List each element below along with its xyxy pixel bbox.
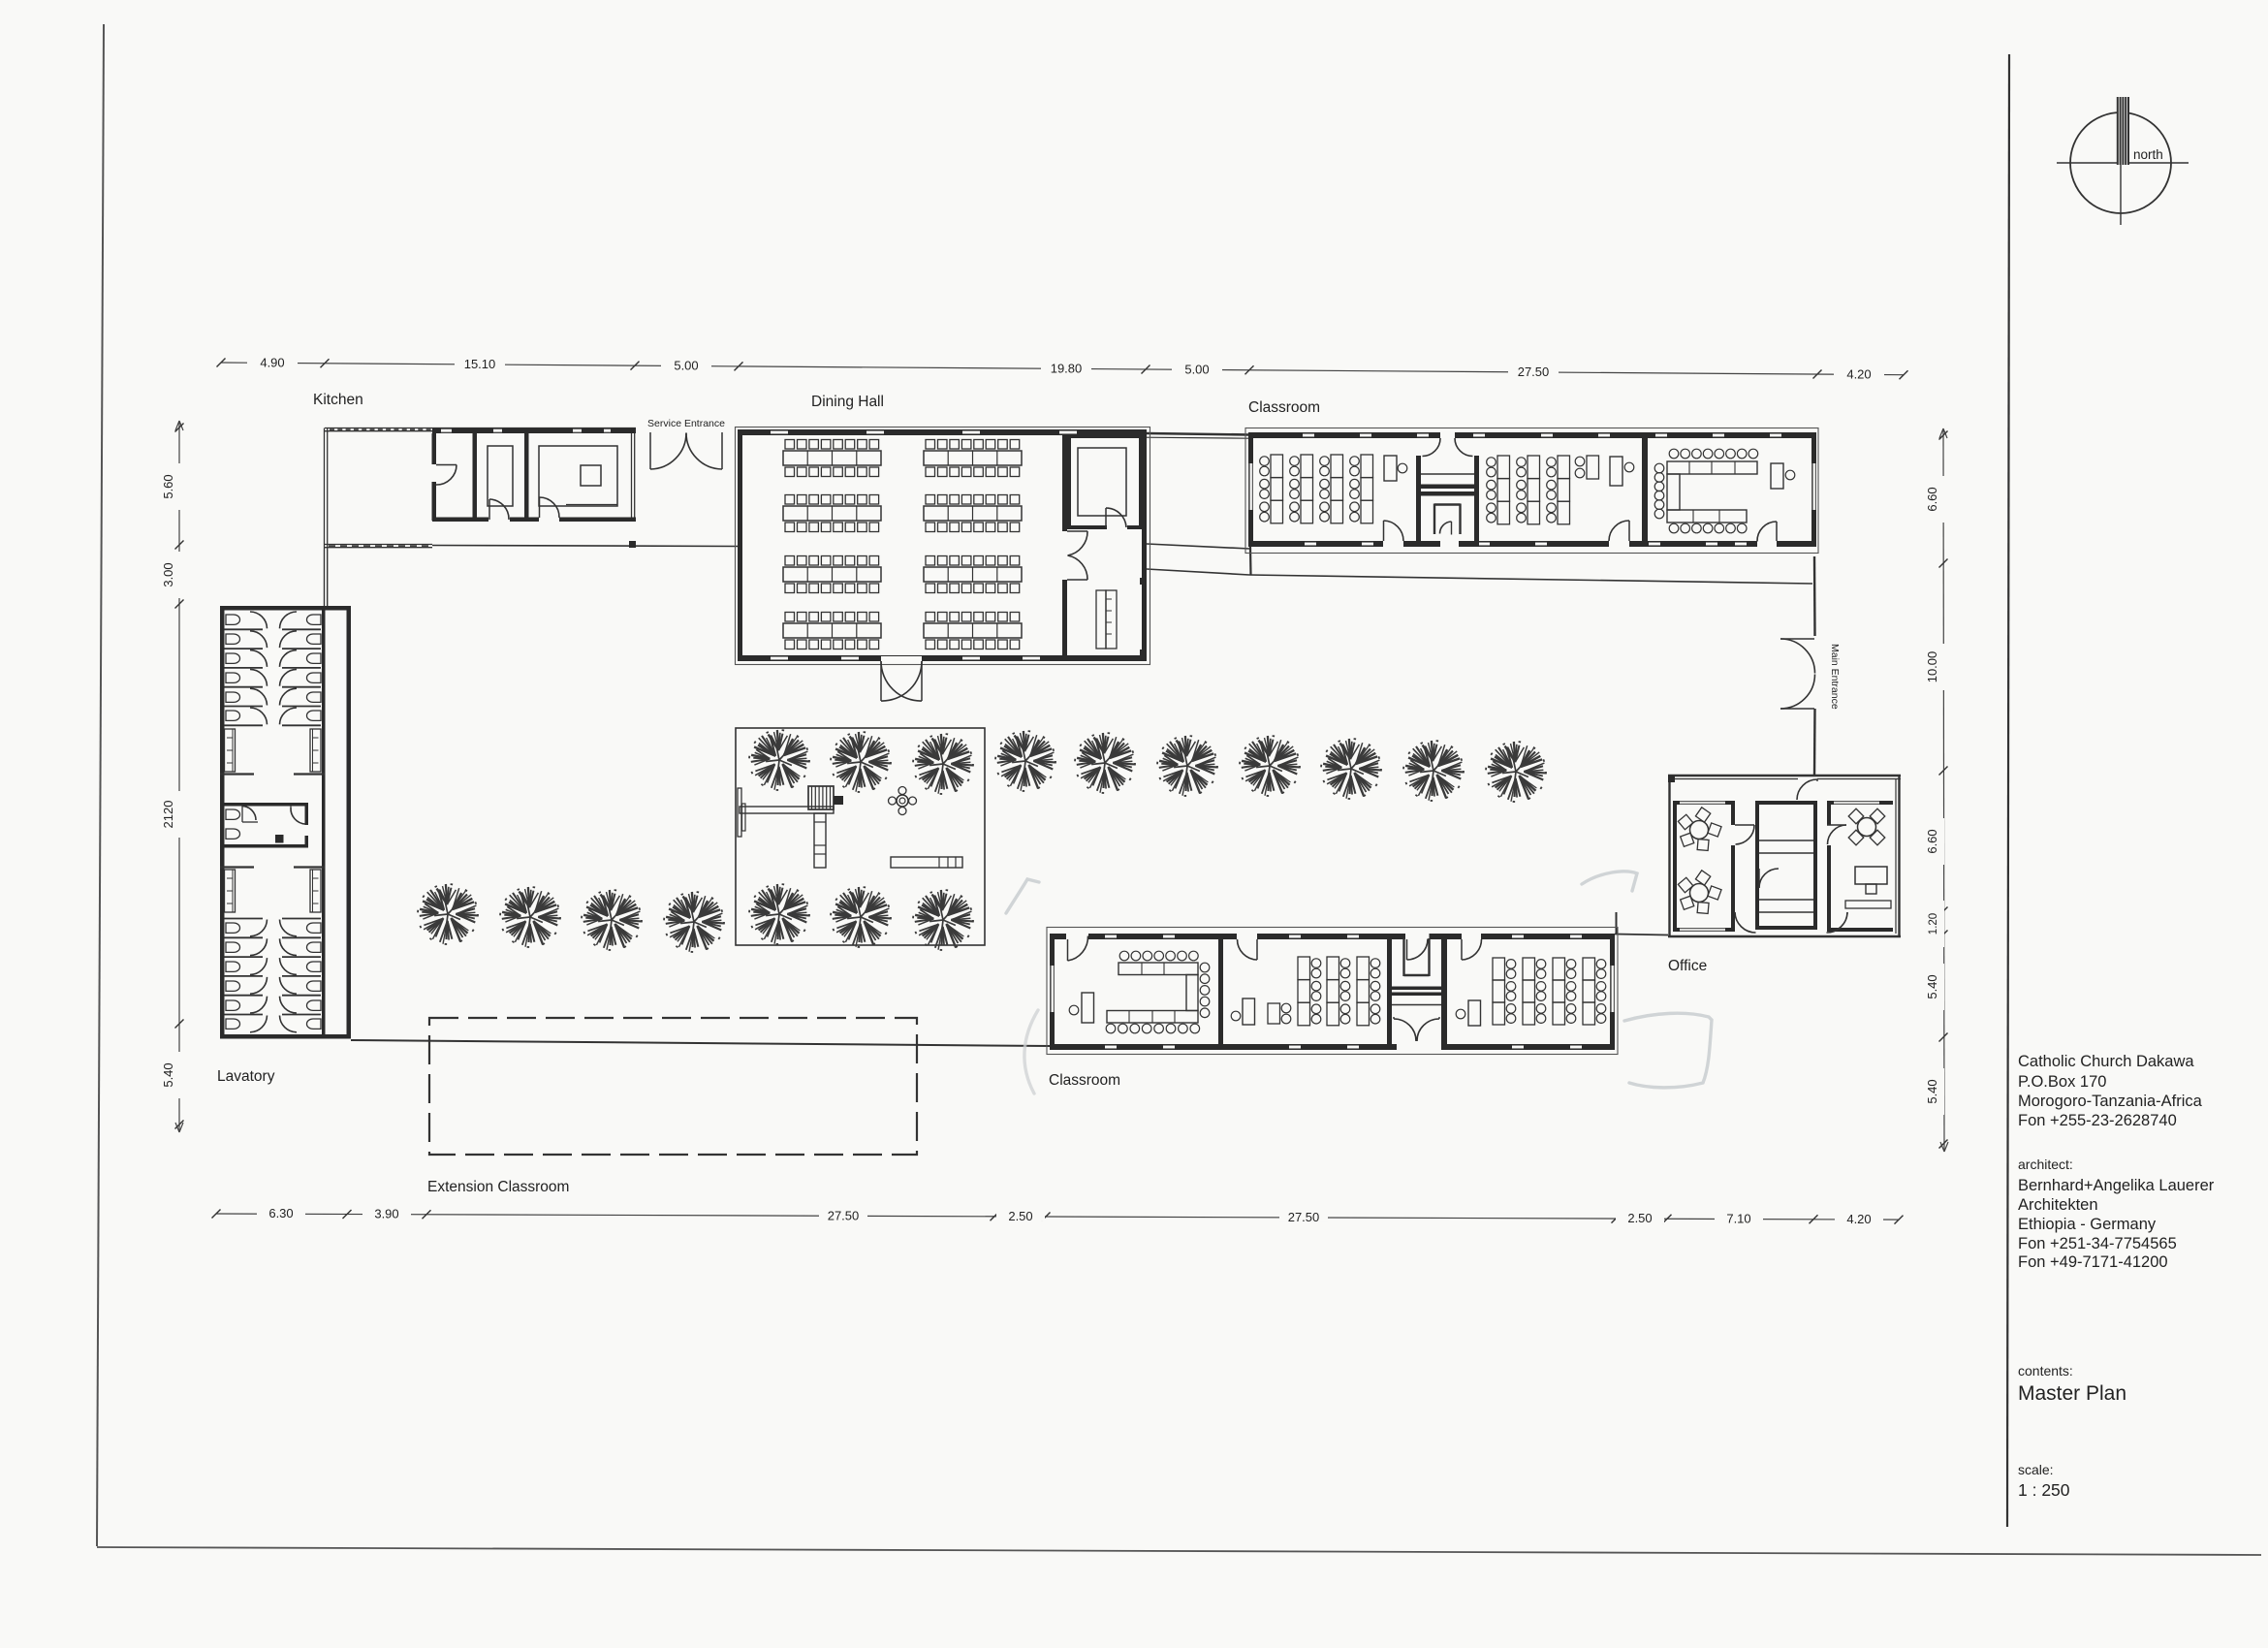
svg-text:Classroom: Classroom	[1248, 399, 1320, 416]
svg-text:4.20: 4.20	[1846, 1212, 1871, 1226]
svg-text:15.10: 15.10	[464, 357, 496, 371]
svg-text:Dining Hall: Dining Hall	[811, 394, 884, 410]
svg-text:P.O.Box 170: P.O.Box 170	[2018, 1073, 2106, 1091]
svg-text:Service Entrance: Service Entrance	[647, 418, 725, 429]
svg-text:Kitchen: Kitchen	[313, 392, 363, 408]
svg-text:5.40: 5.40	[1925, 1079, 1939, 1103]
svg-text:north: north	[2133, 147, 2163, 162]
svg-text:Morogoro-Tanzania-Africa: Morogoro-Tanzania-Africa	[2018, 1093, 2203, 1110]
svg-text:architect:: architect:	[2018, 1157, 2073, 1172]
svg-text:Fon +251-34-7754565: Fon +251-34-7754565	[2018, 1235, 2177, 1252]
svg-text:6.30: 6.30	[268, 1206, 293, 1220]
svg-text:4.20: 4.20	[1846, 366, 1871, 381]
svg-text:2.50: 2.50	[1627, 1211, 1652, 1225]
svg-text:Fon +49-7171-41200: Fon +49-7171-41200	[2018, 1253, 2168, 1271]
svg-text:3.90: 3.90	[374, 1207, 398, 1221]
svg-text:Catholic Church Dakawa: Catholic Church Dakawa	[2018, 1053, 2194, 1070]
svg-text:Extension Classroom: Extension Classroom	[427, 1179, 569, 1195]
svg-text:27.50: 27.50	[1288, 1210, 1320, 1224]
svg-text:Fon +255-23-2628740: Fon +255-23-2628740	[2018, 1112, 2177, 1129]
svg-text:5.00: 5.00	[1184, 362, 1209, 376]
svg-text:27.50: 27.50	[1518, 364, 1550, 379]
svg-text:1.20: 1.20	[1928, 913, 1939, 935]
svg-text:7.10: 7.10	[1726, 1211, 1750, 1225]
svg-text:19.80: 19.80	[1051, 361, 1083, 375]
svg-text:scale:: scale:	[2018, 1462, 2054, 1477]
svg-text:Master Plan: Master Plan	[2018, 1382, 2126, 1405]
svg-text:10.00: 10.00	[1925, 651, 1939, 683]
svg-text:5.00: 5.00	[674, 359, 698, 373]
svg-text:Lavatory: Lavatory	[217, 1068, 275, 1085]
svg-text:2120: 2120	[161, 801, 175, 829]
svg-text:27.50: 27.50	[828, 1208, 860, 1222]
svg-text:6.60: 6.60	[1925, 829, 1939, 853]
svg-text:4.90: 4.90	[260, 355, 284, 369]
svg-text:1 : 250: 1 : 250	[2018, 1480, 2070, 1500]
svg-text:Architekten: Architekten	[2018, 1196, 2098, 1214]
svg-text:Classroom: Classroom	[1049, 1072, 1120, 1089]
svg-text:Ethiopia - Germany: Ethiopia - Germany	[2018, 1216, 2157, 1233]
svg-text:Office: Office	[1668, 958, 1707, 974]
svg-text:contents:: contents:	[2018, 1363, 2073, 1379]
svg-text:5.40: 5.40	[161, 1062, 175, 1087]
svg-text:5.60: 5.60	[161, 474, 175, 498]
svg-text:6.60: 6.60	[1925, 487, 1939, 511]
svg-text:2.50: 2.50	[1008, 1209, 1032, 1223]
svg-text:Main Entrance: Main Entrance	[1829, 644, 1841, 710]
svg-text:3.00: 3.00	[161, 562, 175, 586]
svg-text:5.40: 5.40	[1925, 974, 1939, 998]
svg-text:Bernhard+Angelika Lauerer: Bernhard+Angelika Lauerer	[2018, 1177, 2215, 1194]
